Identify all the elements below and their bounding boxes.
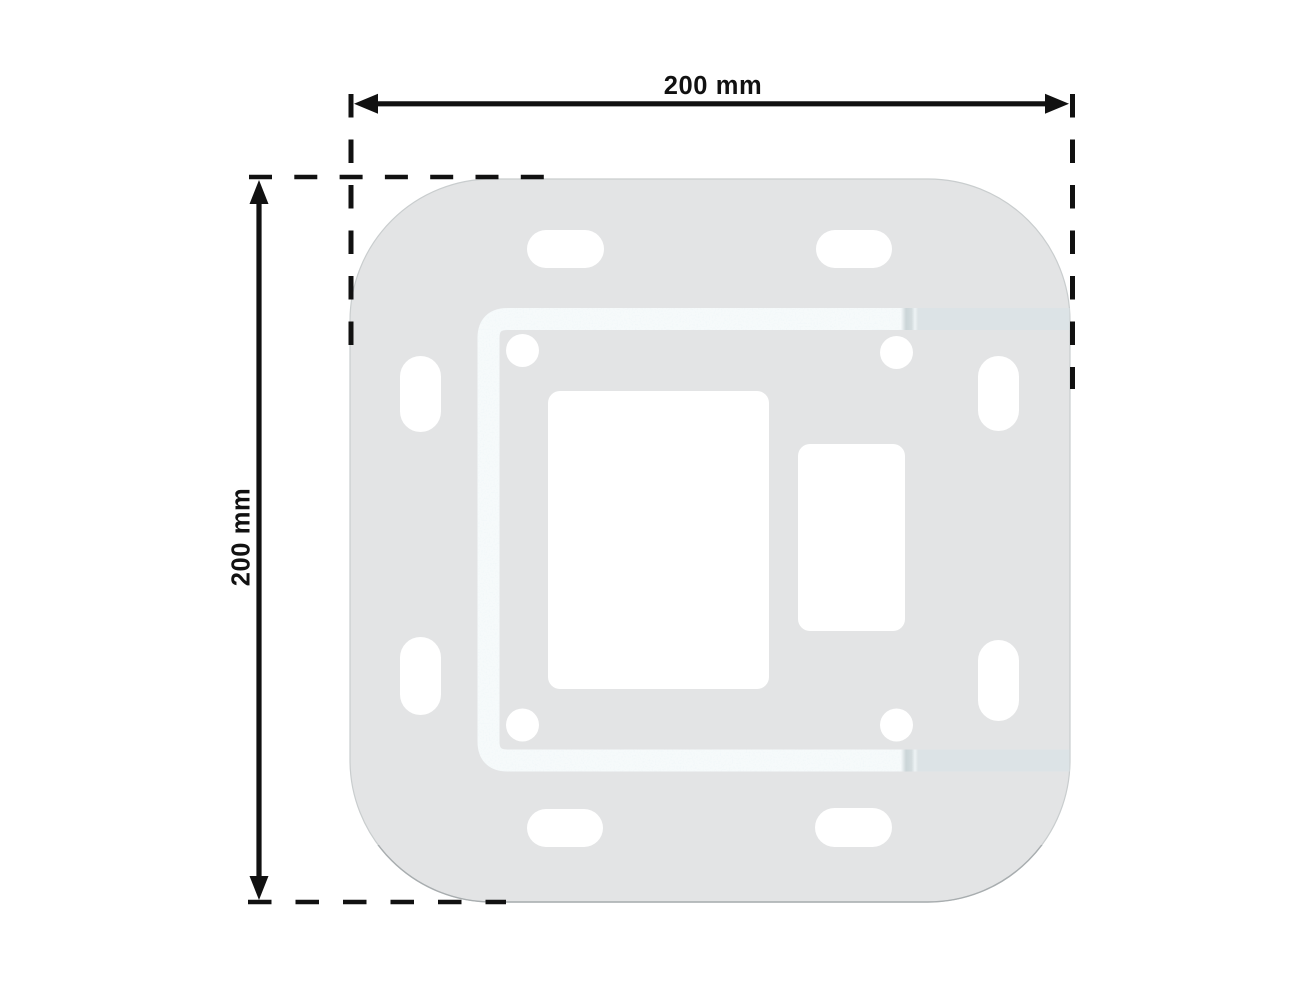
svg-text:200 mm: 200 mm (664, 72, 763, 100)
svg-text:200 mm: 200 mm (228, 488, 256, 587)
